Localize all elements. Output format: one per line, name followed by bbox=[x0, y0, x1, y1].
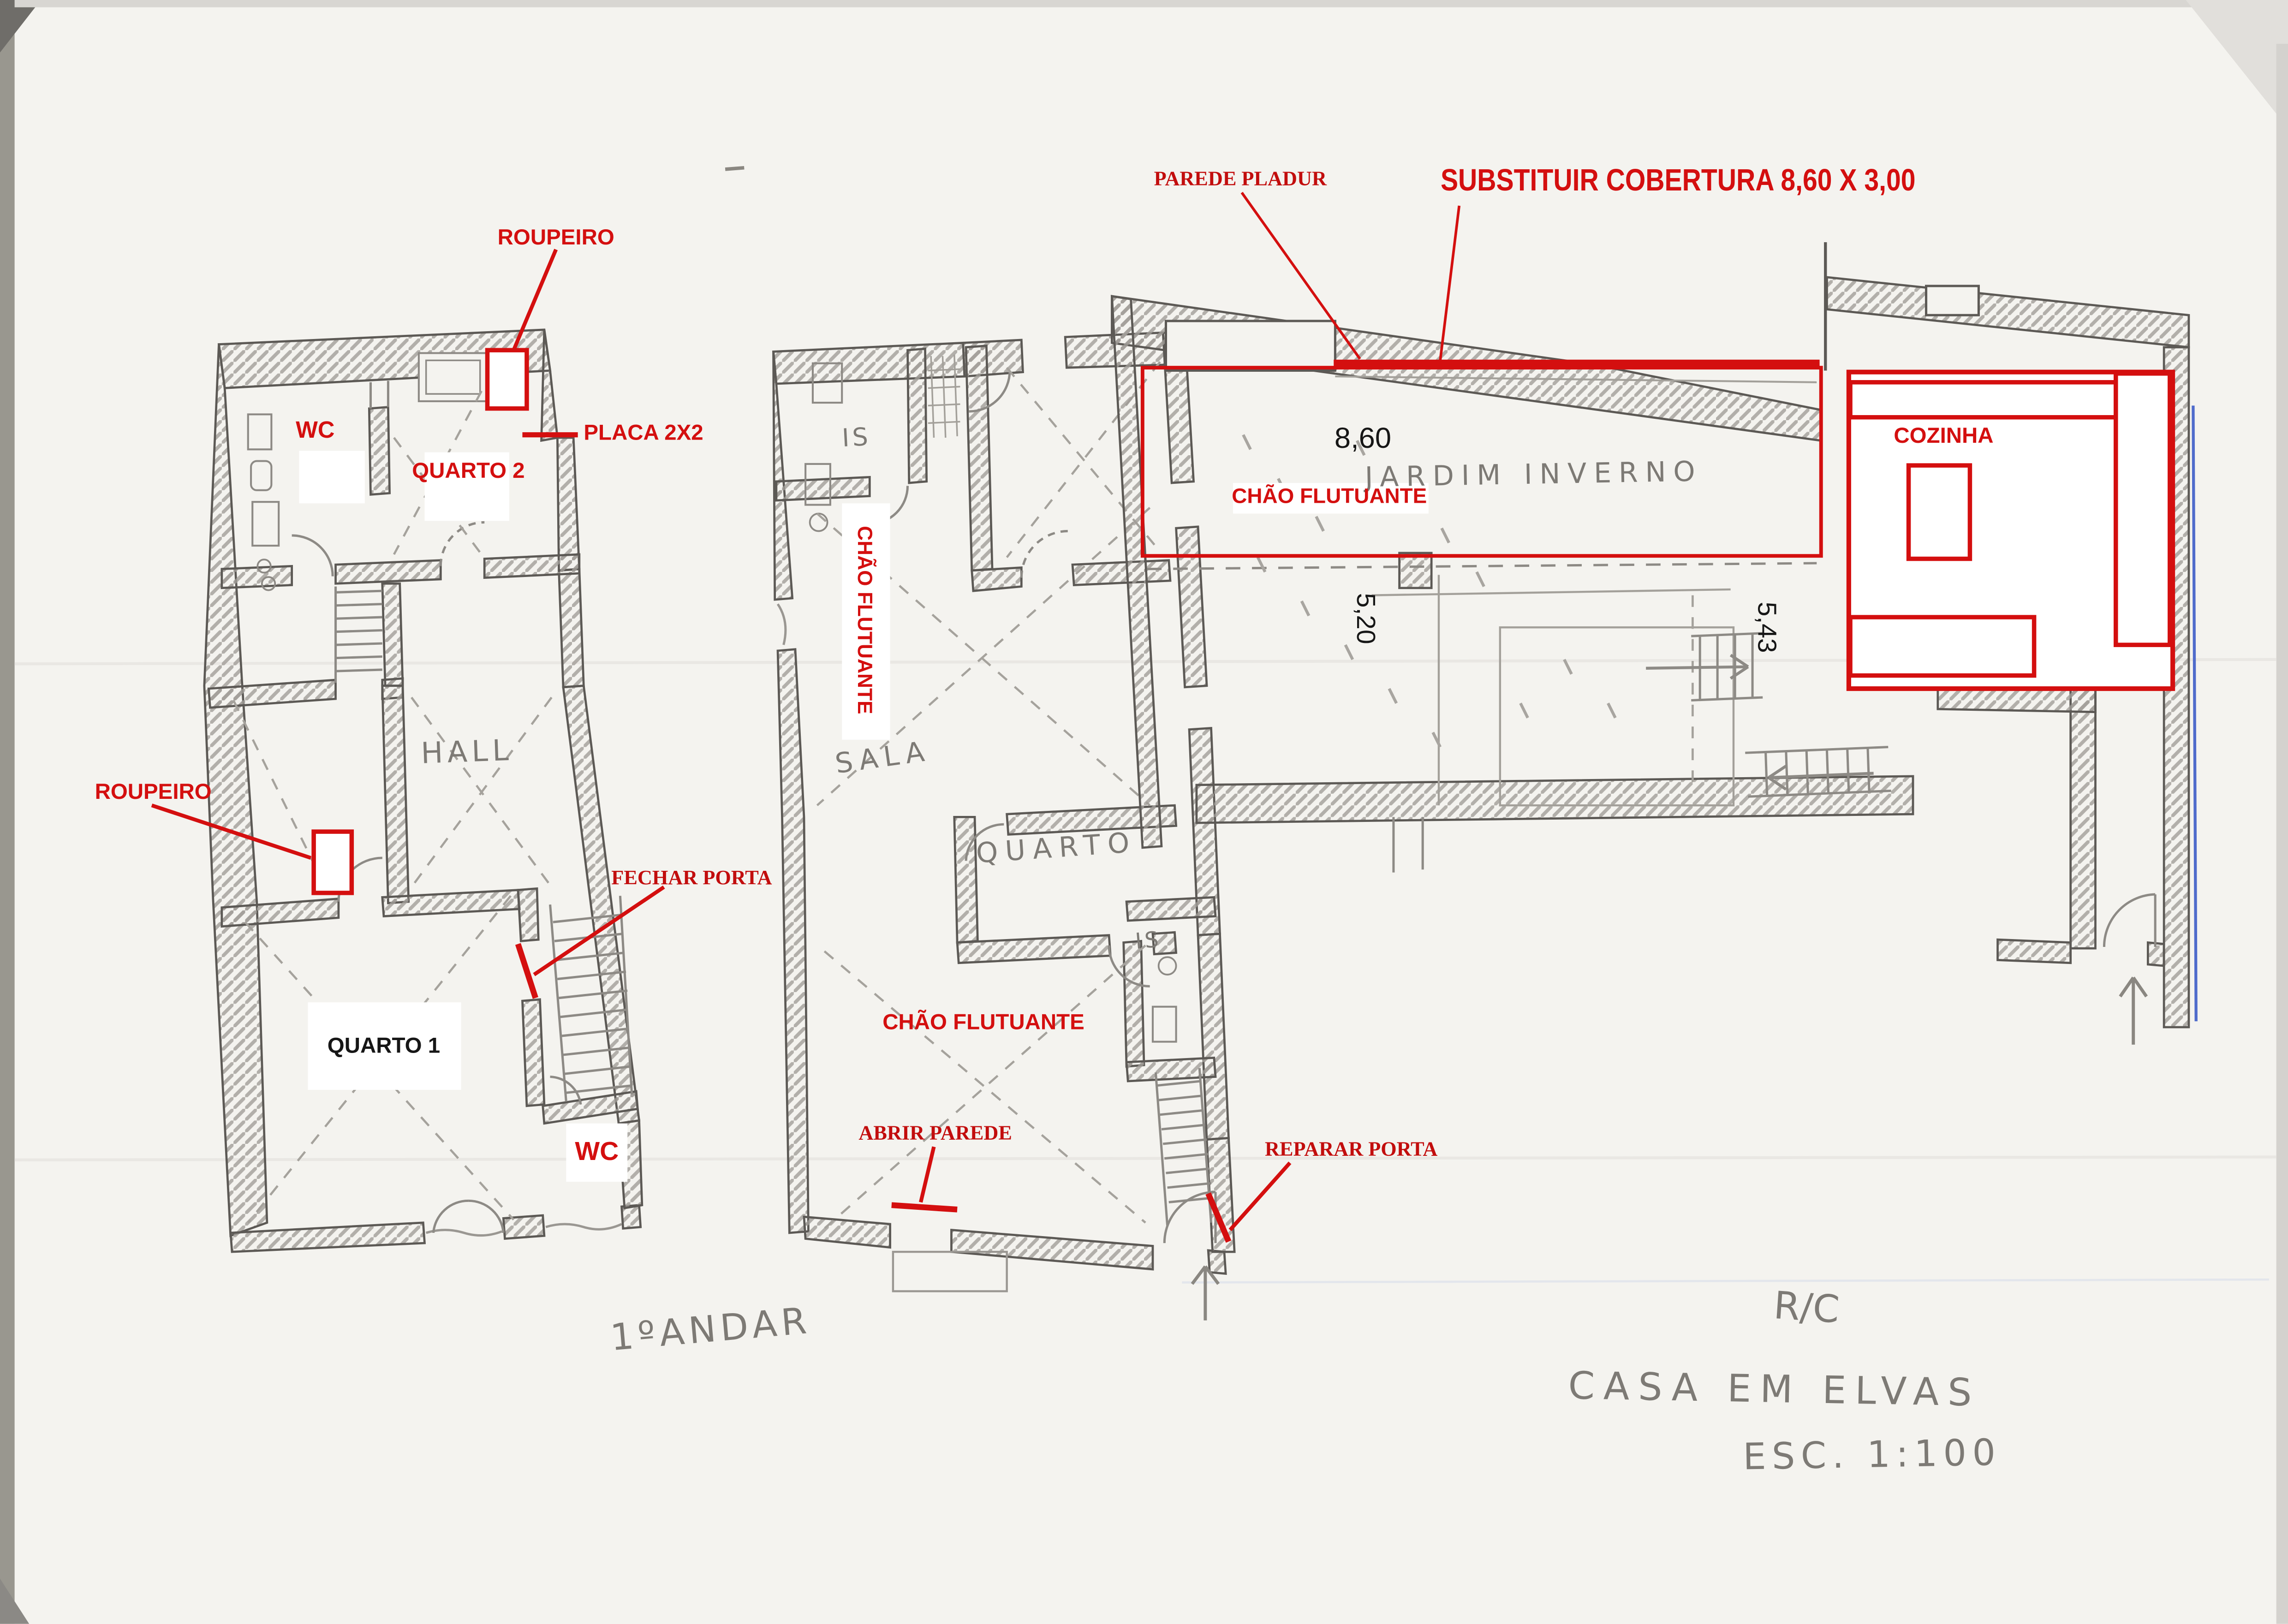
dimension-5-43: 5,43 bbox=[1754, 602, 1780, 653]
scanned-floorplan-sheet: ROUPEIRO WC QUARTO 2 PLACA 2X2 ROUPEIRO … bbox=[0, 0, 2288, 1624]
room-label-wc-top: WC bbox=[296, 420, 334, 444]
annotation-fechar-porta: FECHAR PORTA bbox=[611, 869, 772, 890]
project-title: CASA EM ELVAS bbox=[1568, 1368, 1981, 1413]
room-label-is-mid: IS bbox=[1134, 929, 1162, 953]
room-label-hall: HALL bbox=[421, 735, 513, 767]
dimension-8-60: 8,60 bbox=[1335, 425, 1391, 454]
scale-label: ESC. 1:100 bbox=[1743, 1434, 2002, 1475]
annotation-chao-flutuante-jardim: CHÃO FLUTUANTE bbox=[1232, 487, 1427, 508]
room-label-quarto1: QUARTO 1 bbox=[328, 1035, 440, 1057]
room-label-wc-bottom: WC bbox=[575, 1138, 619, 1164]
annotation-parede-pladur: PAREDE PLADUR bbox=[1154, 171, 1327, 191]
room-label-quarto2: QUARTO 2 bbox=[412, 460, 524, 482]
annotation-chao-flutuante-sala: CHÃO FLUTUANTE bbox=[855, 526, 876, 714]
room-label-is-top: IS bbox=[841, 426, 871, 452]
kitchen-outline bbox=[1849, 372, 2173, 689]
floor0-title: R/C bbox=[1772, 1287, 1841, 1330]
annotation-placa-2x2: PLACA 2X2 bbox=[584, 422, 703, 444]
annotation-reparar-porta: REPARAR PORTA bbox=[1265, 1141, 1437, 1161]
room-label-cozinha: COZINHA bbox=[1894, 425, 1993, 447]
dimension-5-20: 5,20 bbox=[1353, 593, 1379, 644]
annotation-chao-flutuante-inferior: CHÃO FLUTUANTE bbox=[882, 1012, 1084, 1034]
annotation-roupeiro-top: ROUPEIRO bbox=[498, 227, 614, 249]
annotation-abrir-parede: ABRIR PAREDE bbox=[858, 1125, 1012, 1145]
annotation-roupeiro-left: ROUPEIRO bbox=[95, 781, 212, 803]
annotation-substituir-cobertura: SUBSTITUIR COBERTURA 8,60 X 3,00 bbox=[1441, 166, 1916, 196]
